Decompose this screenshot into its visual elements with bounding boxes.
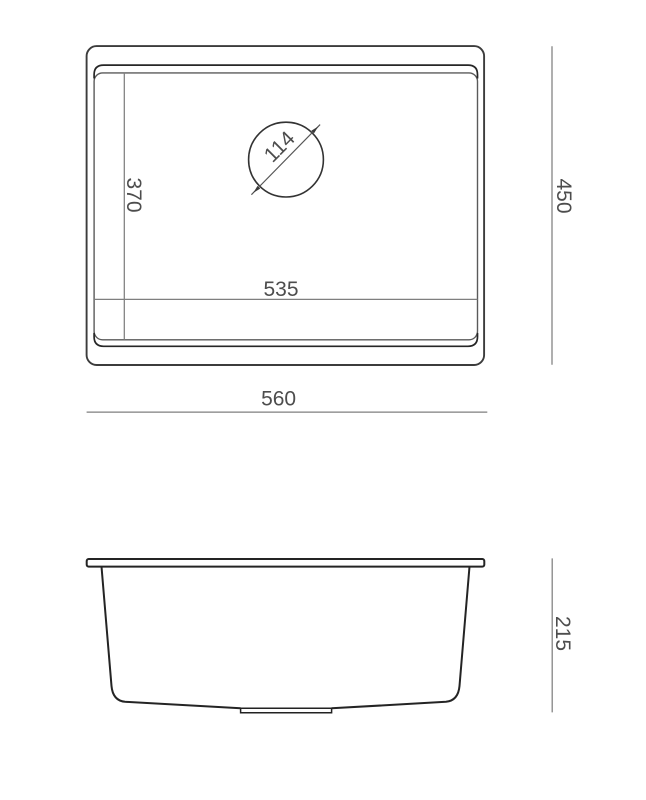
svg-text:535: 535 <box>263 278 298 301</box>
svg-text:450: 450 <box>552 178 575 213</box>
svg-text:370: 370 <box>122 177 145 212</box>
svg-text:215: 215 <box>551 616 574 651</box>
svg-text:114: 114 <box>260 127 300 167</box>
svg-text:560: 560 <box>261 388 296 411</box>
